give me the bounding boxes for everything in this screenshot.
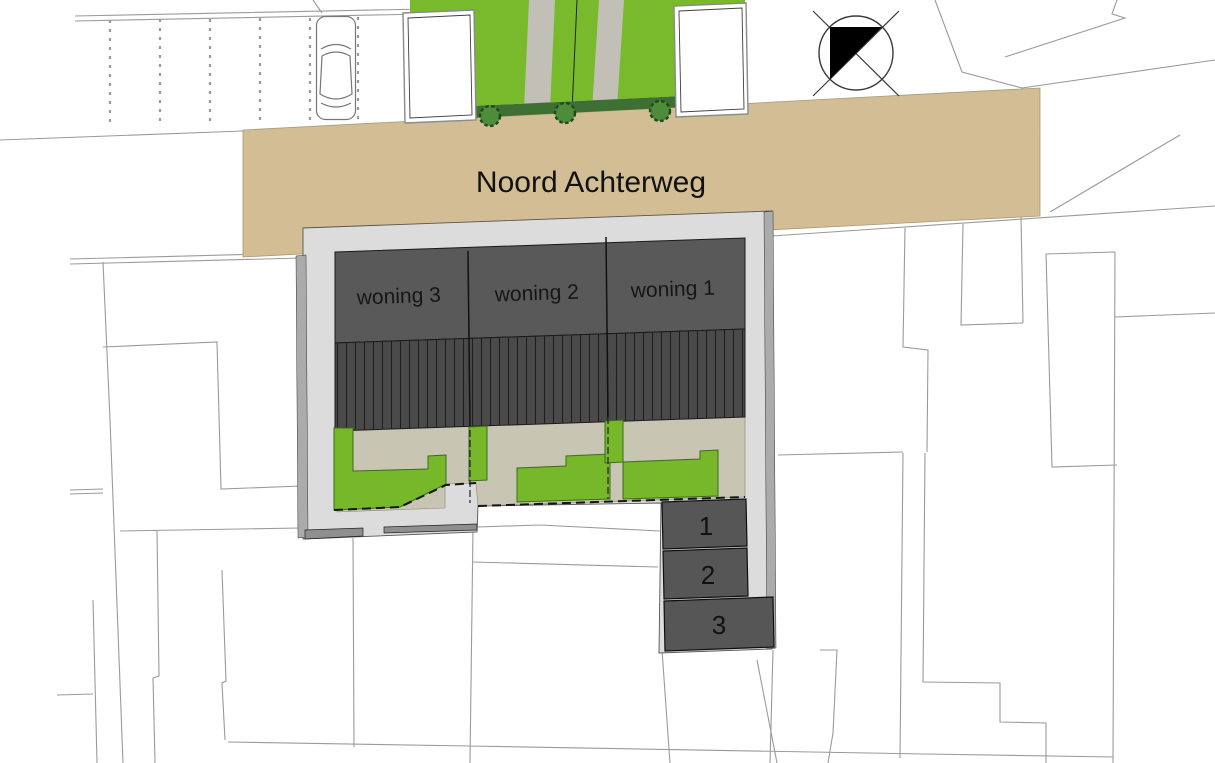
roof-hatch — [335, 329, 745, 431]
north-arrow-icon — [813, 11, 899, 96]
house-label-woning-2: woning 2 — [493, 281, 579, 307]
neighbour-building-left — [403, 10, 476, 123]
house-block: woning 3 woning 2 woning 1 — [335, 237, 745, 431]
garden-strip-1 — [469, 426, 487, 481]
site-plan-drawing: Noord Achterweg woning 3 woning 2 woning… — [0, 0, 1215, 763]
house-label-woning-1: woning 1 — [629, 277, 715, 303]
parcel-lines-bottom-center — [470, 525, 1113, 763]
tree-icon — [480, 106, 500, 126]
road-name-label: Noord Achterweg — [476, 166, 706, 199]
parking-label-2: 2 — [701, 560, 715, 590]
house-label-woning-3: woning 3 — [355, 284, 441, 310]
parking-label-1: 1 — [699, 511, 713, 541]
parking-label-3: 3 — [712, 610, 726, 640]
tree-icon — [555, 103, 575, 123]
car-icon — [317, 17, 356, 120]
plot-edge-left — [296, 255, 308, 538]
parking-lot-stripes — [110, 17, 407, 127]
parcel-lines-top-left — [0, 0, 425, 140]
neighbour-building-right — [674, 3, 748, 117]
green-zone — [403, 0, 748, 126]
footpath-left — [524, 0, 555, 111]
tree-icon — [650, 101, 670, 121]
site-plan-page: Noord Achterweg woning 3 woning 2 woning… — [0, 0, 1215, 763]
